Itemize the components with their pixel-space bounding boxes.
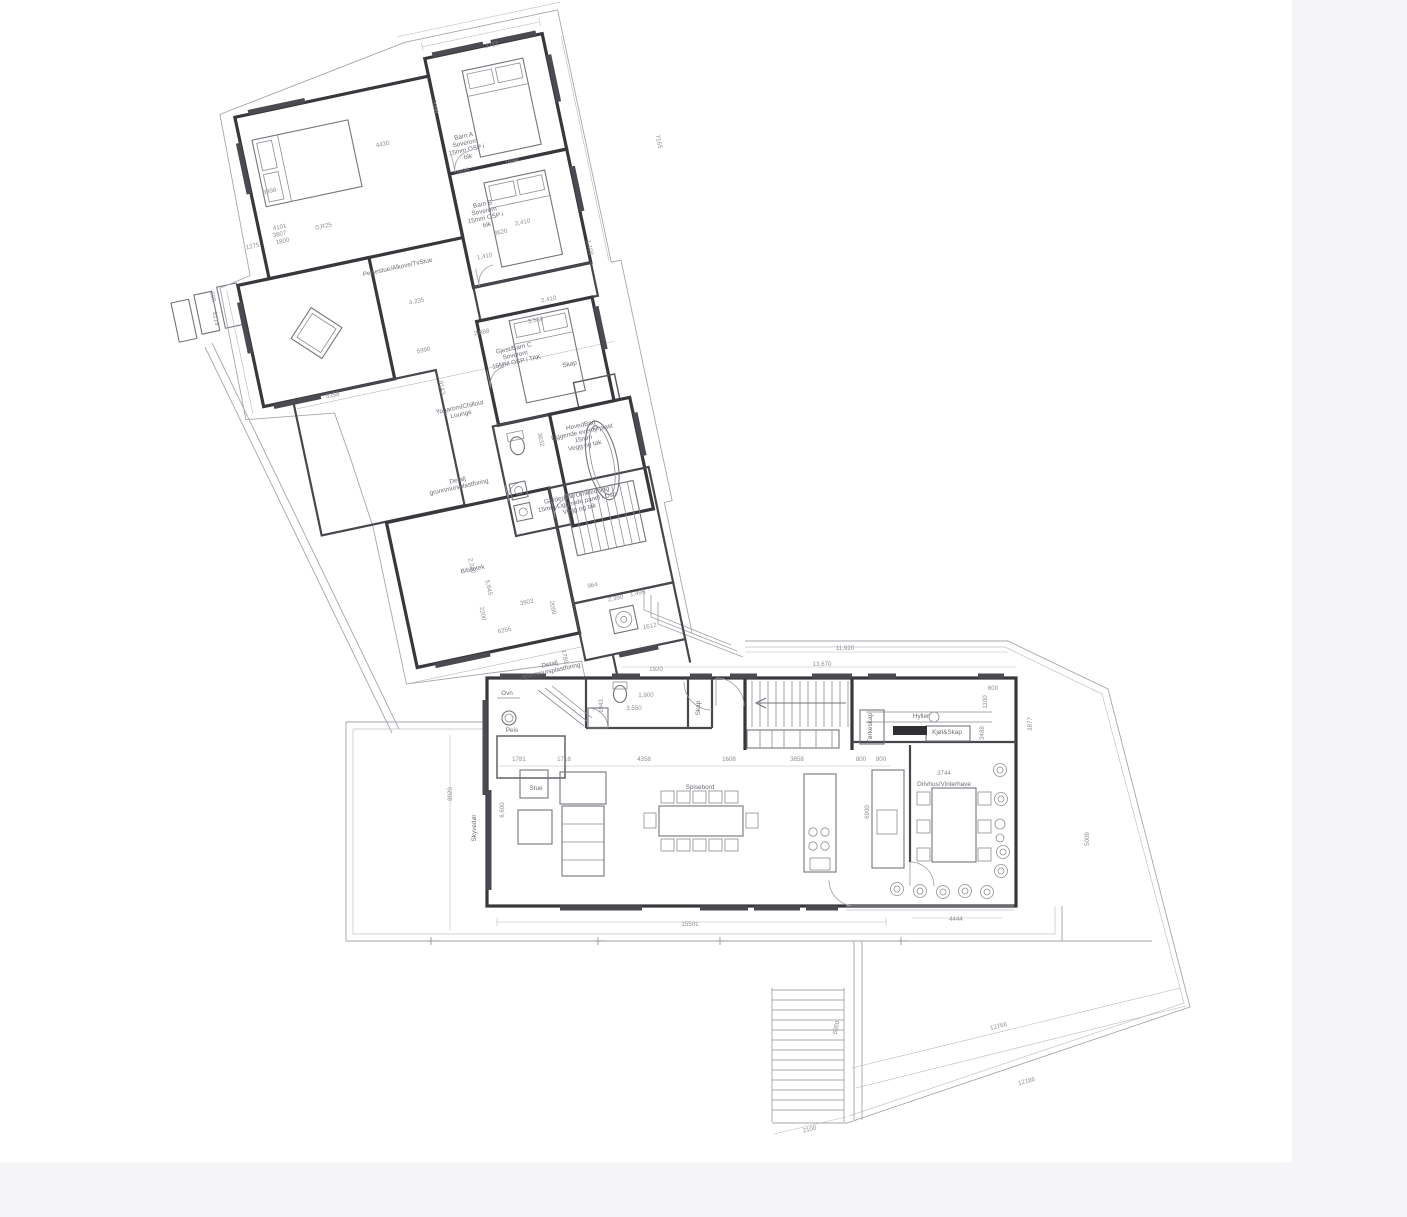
dimension-label-6900: 6900 (864, 805, 871, 819)
dimension-label-3,550: 3,550 (626, 705, 642, 712)
dimension-label-1920: 1920 (649, 666, 663, 673)
dimension-label-1100: 1100 (982, 695, 989, 709)
room-label-ovn: Ovn (501, 690, 513, 697)
dimension-label-8920: 8920 (447, 787, 454, 801)
room-label-spisebord: Spisebord (686, 784, 715, 791)
dimension-label-3488: 3488 (979, 726, 986, 740)
canvas-background (0, 0, 1407, 1217)
bottom-margin-strip (0, 1162, 1407, 1217)
dimension-label-800: 800 (856, 756, 867, 763)
dimension-label-1608: 1608 (722, 756, 736, 763)
dimension-label-13,670: 13,670 (813, 661, 832, 668)
dimension-label-1943: 1943 (598, 699, 605, 713)
room-label-kjol-skap: Kjøl&Skap (932, 729, 962, 736)
floor-plan-canvas: 3717209844301835169471651,1000,R25399841… (0, 0, 1407, 1217)
room-label-skyvedor: Skyvedør (471, 814, 478, 842)
dimension-label-15501: 15501 (681, 921, 699, 928)
dimension-label-3877: 3877 (1027, 717, 1034, 731)
dimension-label-4444: 4444 (949, 916, 963, 923)
dimension-label-1781: 1781 (512, 756, 526, 763)
room-label-peis: Peis (506, 727, 518, 734)
room-label-hyller: Hyller (913, 713, 930, 720)
dimension-label-3744: 3744 (937, 770, 951, 777)
dimension-label-5009: 5009 (1084, 832, 1091, 846)
room-label-skap-lower: Skap (695, 700, 702, 715)
floor-plan-page: 3717209844301835169471651,1000,R25399841… (0, 0, 1407, 1217)
room-label-stue: Stue (529, 785, 543, 792)
dimension-label-6,600: 6,600 (499, 802, 506, 818)
dimension-label-600: 600 (988, 685, 999, 692)
dimension-label-1718: 1718 (557, 756, 571, 763)
room-label-torkeskap: Tørkeskap (867, 712, 874, 743)
dimension-label-4358: 4358 (637, 756, 651, 763)
right-margin-strip (1292, 0, 1407, 1217)
dimension-label-1,900: 1,900 (638, 692, 654, 699)
dimension-label-800: 800 (876, 756, 887, 763)
dimension-label-11,920: 11,920 (836, 645, 855, 652)
oven-bar (893, 726, 927, 735)
room-label-drivhus: Drivhus/Vinterhave (917, 781, 971, 788)
dimension-label-3858: 3858 (790, 756, 804, 763)
